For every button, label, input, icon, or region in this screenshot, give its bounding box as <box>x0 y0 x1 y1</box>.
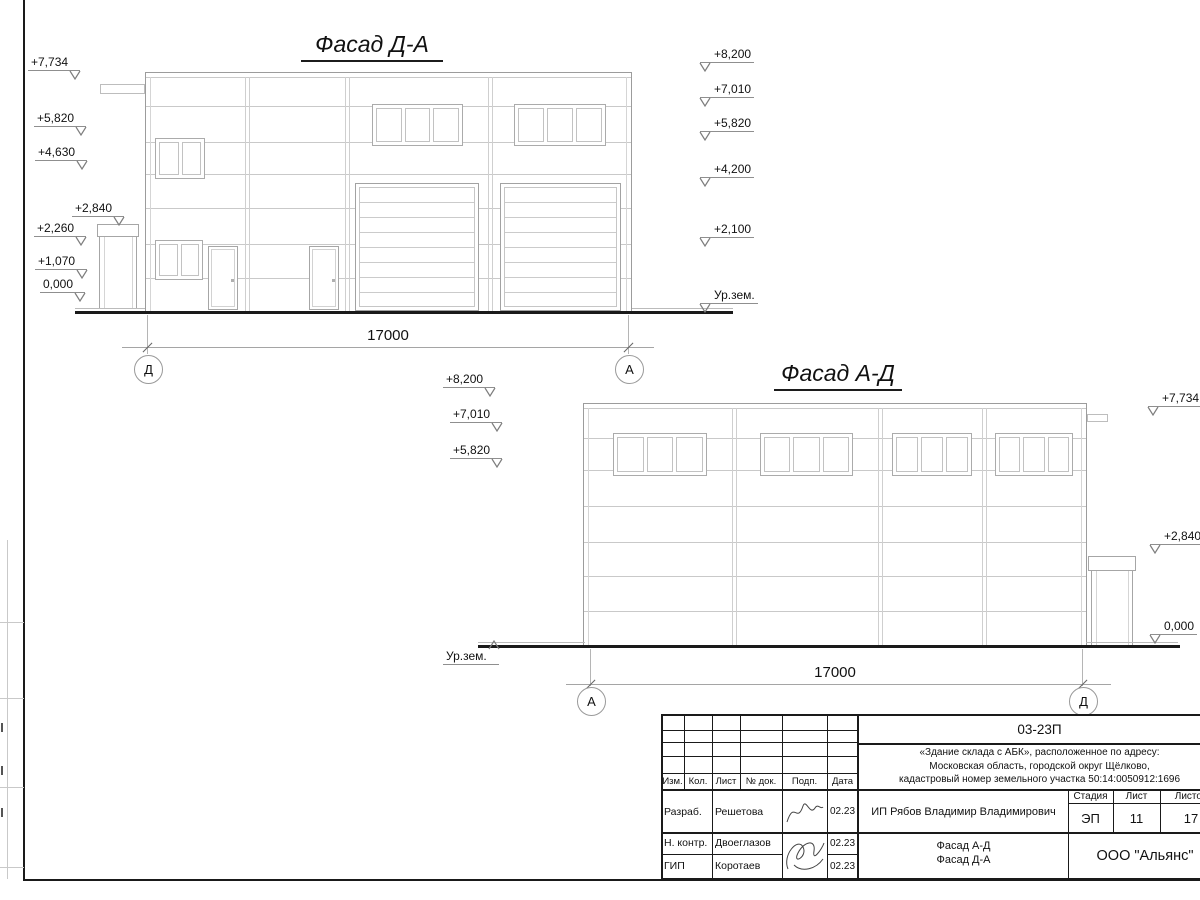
window-pane <box>405 108 431 142</box>
ribbon-window <box>760 433 853 476</box>
ground-line <box>75 311 733 314</box>
panel-joint <box>584 506 1086 507</box>
elevation-mark: +7,010 <box>700 82 754 98</box>
elevation-mark: +7,734 <box>1148 391 1200 407</box>
window-pane <box>159 142 179 175</box>
window-pane <box>823 437 849 472</box>
window-pane <box>576 108 602 142</box>
window <box>155 240 203 280</box>
titleblock-border <box>661 714 663 880</box>
sheet-header: Лист <box>1113 790 1160 803</box>
margin-stamp-text-fragment <box>1 808 3 817</box>
window <box>155 138 205 179</box>
door-handle <box>332 279 335 282</box>
sectional-gate <box>355 183 479 311</box>
role-ncontr: Н. контр. <box>664 832 712 854</box>
elevation-arrow-icon <box>491 458 503 468</box>
porch-column-line <box>1128 571 1129 647</box>
role-gip: ГИП <box>664 854 712 878</box>
window-pane <box>433 108 459 142</box>
elevation-arrow-icon <box>69 70 81 80</box>
entrance-door <box>309 246 339 310</box>
porch-column-line <box>132 237 133 309</box>
project-description: «Здание склада с АБК», расположенное по … <box>857 746 1200 787</box>
wall-joint <box>488 77 493 312</box>
axis-marker: А <box>615 355 644 384</box>
elevation-mark: +2,840 <box>1150 529 1200 545</box>
panel-joint <box>584 576 1086 577</box>
sectional-gate <box>500 183 621 311</box>
porch-body <box>99 236 137 309</box>
col-header-data: Дата <box>827 773 858 789</box>
project-line: «Здание склада с АБК», расположенное по … <box>857 746 1200 760</box>
titleblock-line <box>661 756 858 757</box>
facade-ad-title: Фасад А-Д <box>774 360 902 391</box>
elevation-arrow-icon <box>699 303 711 313</box>
ground-line <box>478 645 1180 648</box>
titleblock-border <box>661 878 1200 880</box>
elevation-mark: +4,200 <box>700 162 754 178</box>
ribbon-window <box>995 433 1073 476</box>
elevation-arrow-icon <box>76 160 88 170</box>
margin-stamp-line <box>0 698 24 699</box>
door-leaf <box>312 249 336 307</box>
entrance-door <box>208 246 238 310</box>
window-pane <box>159 244 178 276</box>
corner-line <box>150 77 151 312</box>
wall-joint <box>982 408 987 645</box>
parapet-line <box>584 408 1086 409</box>
parapet-line <box>146 77 631 78</box>
date-razrab: 02.23 <box>827 791 858 832</box>
col-header-izm: Изм. <box>661 773 684 789</box>
door-handle <box>231 279 234 282</box>
elevation-arrow-icon <box>699 97 711 107</box>
margin-stamp-text-fragment <box>1 723 3 732</box>
col-header-kol: Кол. <box>684 773 712 789</box>
col-header-podp: Подп. <box>782 773 827 789</box>
margin-stamp-line <box>0 622 24 623</box>
elevation-arrow-icon <box>699 237 711 247</box>
window-pane <box>793 437 819 472</box>
window-pane <box>896 437 918 472</box>
corner-line <box>1081 408 1082 645</box>
drawing-sheet: Фасад Д-А <box>0 0 1200 900</box>
stage-header: Стадия <box>1068 790 1113 803</box>
window-pane <box>921 437 943 472</box>
elevation-arrow-icon <box>75 236 87 246</box>
sheet-frame-left <box>23 0 25 881</box>
elevation-mark: +2,100 <box>700 222 754 238</box>
axis-marker: А <box>577 687 606 716</box>
sheets-total: 17 <box>1160 804 1200 832</box>
elevation-mark: +4,630 <box>35 145 87 161</box>
grade-line <box>632 308 733 309</box>
window-pane <box>1048 437 1069 472</box>
elevation-arrow-icon <box>75 126 87 136</box>
window-pane <box>547 108 573 142</box>
date-gip: 02.23 <box>827 854 858 878</box>
elevation-mark: +1,070 <box>35 254 87 270</box>
porch-column-line <box>104 237 105 309</box>
window-pane <box>376 108 402 142</box>
margin-stamp-text-fragment <box>1 766 3 775</box>
window-pane <box>676 437 703 472</box>
project-line: Московская область, городской округ Щёлк… <box>857 760 1200 774</box>
col-header-list: Лист <box>712 773 740 789</box>
wall-joint <box>245 77 250 312</box>
elevation-mark: +5,820 <box>34 111 86 127</box>
elevation-mark: +7,010 <box>450 407 502 423</box>
door-leaf <box>211 249 235 307</box>
ribbon-window <box>372 104 463 146</box>
signature <box>784 794 824 830</box>
grade-line <box>1086 642 1178 643</box>
facade-da-building <box>145 72 632 313</box>
panel-joint <box>584 611 1086 612</box>
name-ncontr: Двоеглазов <box>715 832 781 854</box>
elevation-mark: +2,260 <box>34 221 86 237</box>
axis-marker: Д <box>1069 687 1098 716</box>
porch-column-line <box>1096 571 1097 647</box>
dimension-line <box>566 684 1111 685</box>
window-pane <box>518 108 544 142</box>
panel-joint <box>584 542 1086 543</box>
elevation-mark: +8,200 <box>443 372 495 388</box>
elevation-mark: +2,840 <box>72 201 124 217</box>
window-pane <box>182 142 202 175</box>
elevation-mark: +5,820 <box>450 443 502 459</box>
window-pane <box>764 437 790 472</box>
window-pane <box>946 437 968 472</box>
title-block: Изм. Кол. Лист № док. Подп. Дата Разраб.… <box>661 714 1200 880</box>
elevation-arrow-icon <box>491 422 503 432</box>
porch-roof <box>1088 556 1136 571</box>
window-pane <box>647 437 674 472</box>
grade-line <box>75 308 145 309</box>
name-gip: Коротаев <box>715 854 781 878</box>
sheet-name-line: Фасад Д-А <box>859 853 1068 867</box>
porch-body <box>1091 570 1133 647</box>
margin-stamp-line <box>0 787 24 788</box>
titleblock-line <box>712 714 713 880</box>
wall-joint <box>878 408 883 645</box>
stage-value: ЭП <box>1068 804 1113 832</box>
titleblock-line <box>661 730 858 731</box>
elevation-arrow-icon <box>699 62 711 72</box>
elevation-arrow-icon <box>1147 406 1159 416</box>
elevation-arrow-icon <box>699 177 711 187</box>
corner-line <box>626 77 627 312</box>
elevation-arrow-icon <box>1149 544 1161 554</box>
titleblock-line <box>857 743 1200 745</box>
facade-da-title: Фасад Д-А <box>301 31 443 62</box>
client-name: ИП Рябов Владимир Владимирович <box>859 791 1068 832</box>
ribbon-window <box>892 433 972 476</box>
col-header-doc: № док. <box>740 773 782 789</box>
ribbon-window <box>514 104 606 146</box>
window-pane <box>1023 437 1044 472</box>
dimension-value: 17000 <box>350 327 426 344</box>
sheet-number: 11 <box>1113 804 1160 832</box>
elevation-arrow-icon <box>699 131 711 141</box>
elevation-mark: +5,820 <box>700 116 754 132</box>
dimension-line <box>122 347 654 348</box>
gutter-outlet <box>1087 414 1108 422</box>
elevation-arrow-icon <box>113 216 125 226</box>
sheet-name-line: Фасад А-Д <box>859 839 1068 853</box>
ground-level-mark: Ур.зем. <box>443 649 499 665</box>
project-line: кадастровый номер земельного участка 50:… <box>857 773 1200 787</box>
elevation-mark: 0,000 <box>40 277 85 293</box>
elevation-mark: +7,734 <box>28 55 80 71</box>
ground-level-mark: Ур.зем. <box>700 288 758 304</box>
company-name: ООО "Альянс" <box>1068 834 1200 878</box>
dimension-value: 17000 <box>797 664 873 681</box>
sheets-header: Листов <box>1160 790 1200 803</box>
titleblock-line <box>661 742 858 743</box>
date-ncontr: 02.23 <box>827 832 858 854</box>
margin-stamp-line <box>0 867 24 868</box>
doc-number: 03-23П <box>857 716 1200 742</box>
role-razrab: Разраб. <box>664 791 712 832</box>
gate-slats <box>359 187 475 307</box>
gutter-outlet <box>100 84 145 94</box>
signature <box>782 831 826 877</box>
elevation-arrow-icon <box>484 387 496 397</box>
margin-stamp-line <box>7 540 8 879</box>
sheet-name: Фасад А-Д Фасад Д-А <box>859 839 1068 867</box>
name-razrab: Решетова <box>715 791 781 832</box>
extension-line <box>590 649 591 686</box>
corner-line <box>588 408 589 645</box>
facade-ad-building <box>583 403 1087 646</box>
window-pane <box>999 437 1020 472</box>
elevation-arrow-icon <box>488 640 500 650</box>
ribbon-window <box>613 433 707 476</box>
wall-joint <box>732 408 737 645</box>
window-pane <box>617 437 644 472</box>
wall-joint <box>345 77 350 312</box>
panel-joint <box>146 174 631 175</box>
axis-marker: Д <box>134 355 163 384</box>
extension-line <box>1082 649 1083 686</box>
elevation-arrow-icon <box>74 292 86 302</box>
elevation-mark: +8,200 <box>700 47 754 63</box>
elevation-arrow-icon <box>1149 634 1161 644</box>
elevation-mark: 0,000 <box>1150 619 1197 635</box>
window-pane <box>181 244 200 276</box>
gate-slats <box>504 187 617 307</box>
